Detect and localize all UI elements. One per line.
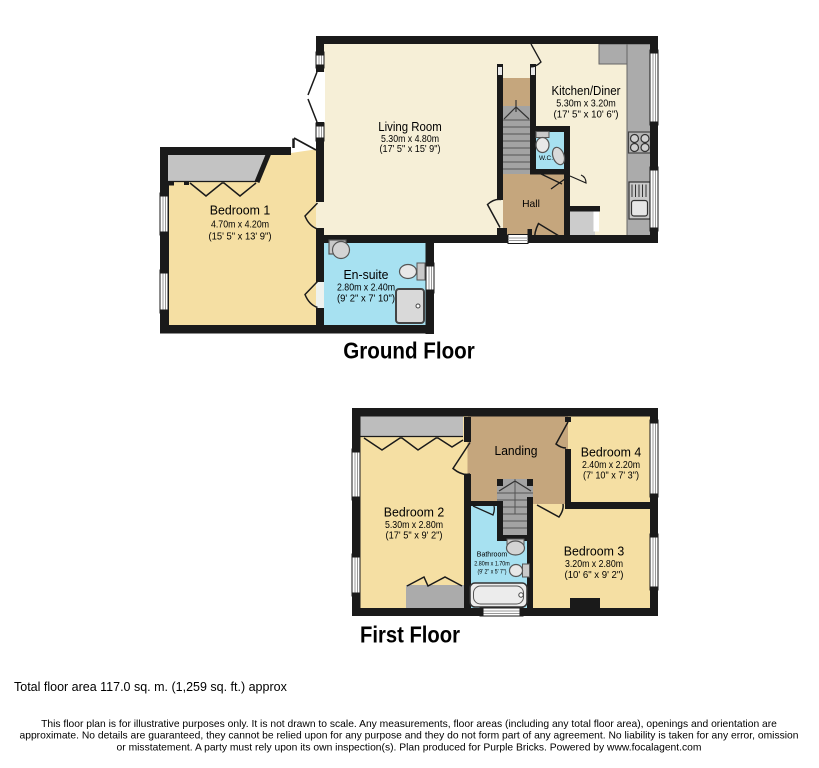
svg-text:2.80m x 1.70m: 2.80m x 1.70m [474, 561, 510, 568]
svg-text:(17' 5" x 9' 2"): (17' 5" x 9' 2") [386, 531, 443, 542]
svg-text:(10' 6" x 9' 2"): (10' 6" x 9' 2") [565, 570, 624, 581]
svg-text:Bedroom 1: Bedroom 1 [210, 203, 271, 218]
svg-text:Kitchen/Diner: Kitchen/Diner [552, 83, 622, 98]
svg-text:Landing: Landing [495, 443, 538, 458]
svg-text:En-suite: En-suite [344, 267, 389, 282]
svg-text:3.20m x 2.80m: 3.20m x 2.80m [565, 559, 623, 570]
svg-text:Ground Floor: Ground Floor [343, 338, 475, 364]
svg-text:2.80m x 2.40m: 2.80m x 2.40m [337, 283, 395, 294]
svg-text:Living Room: Living Room [378, 119, 442, 134]
svg-text:(7' 10" x 7' 3"): (7' 10" x 7' 3") [583, 471, 639, 482]
svg-text:Hall: Hall [522, 199, 540, 210]
svg-text:or misstatement. A party must: or misstatement. A party must rely upon … [117, 742, 702, 753]
svg-text:Bedroom 3: Bedroom 3 [564, 544, 625, 559]
svg-text:(17' 5" x 15' 9"): (17' 5" x 15' 9") [380, 144, 441, 155]
svg-text:This floor plan is for illustr: This floor plan is for illustrative purp… [41, 719, 777, 730]
svg-text:(17' 5" x 10' 6"): (17' 5" x 10' 6") [554, 110, 619, 121]
svg-text:approximate. No details are gu: approximate. No details are guaranteed, … [19, 731, 798, 742]
svg-text:5.30m x 2.80m: 5.30m x 2.80m [385, 520, 443, 531]
svg-text:(15' 5" x 13' 9"): (15' 5" x 13' 9") [209, 232, 272, 243]
svg-text:First Floor: First Floor [360, 622, 460, 648]
svg-text:Bedroom 2: Bedroom 2 [384, 505, 445, 520]
svg-text:W.C.: W.C. [539, 155, 553, 162]
svg-text:Total floor area 117.0 sq. m.: Total floor area 117.0 sq. m. (1,259 sq.… [14, 680, 288, 694]
svg-text:4.70m x 4.20m: 4.70m x 4.20m [211, 220, 269, 231]
svg-text:(9' 2" x 5' 7"): (9' 2" x 5' 7") [478, 569, 507, 576]
svg-text:(9' 2" x 7' 10"): (9' 2" x 7' 10") [337, 294, 395, 305]
svg-text:2.40m x 2.20m: 2.40m x 2.20m [582, 460, 640, 471]
svg-text:Bathroom: Bathroom [477, 550, 508, 559]
svg-text:Bedroom 4: Bedroom 4 [581, 445, 642, 460]
svg-text:5.30m x 3.20m: 5.30m x 3.20m [556, 99, 616, 110]
